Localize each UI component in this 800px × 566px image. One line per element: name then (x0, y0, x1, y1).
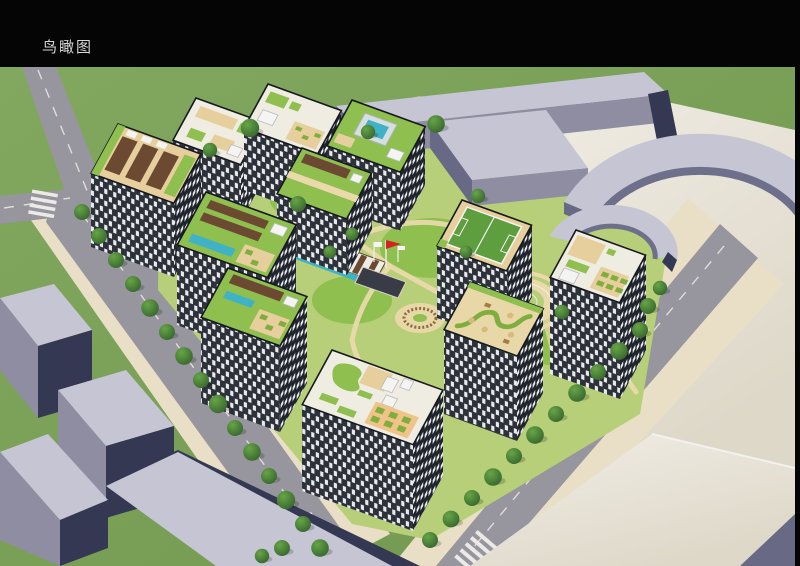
architectural-rendering-page: 鸟瞰图 (0, 0, 800, 566)
top-letterbox (0, 0, 800, 67)
birdseye-rendering (0, 0, 800, 566)
building-09-playground-roof (444, 282, 543, 441)
page-title: 鸟瞰图 (42, 36, 93, 57)
right-letterbox (795, 0, 800, 566)
